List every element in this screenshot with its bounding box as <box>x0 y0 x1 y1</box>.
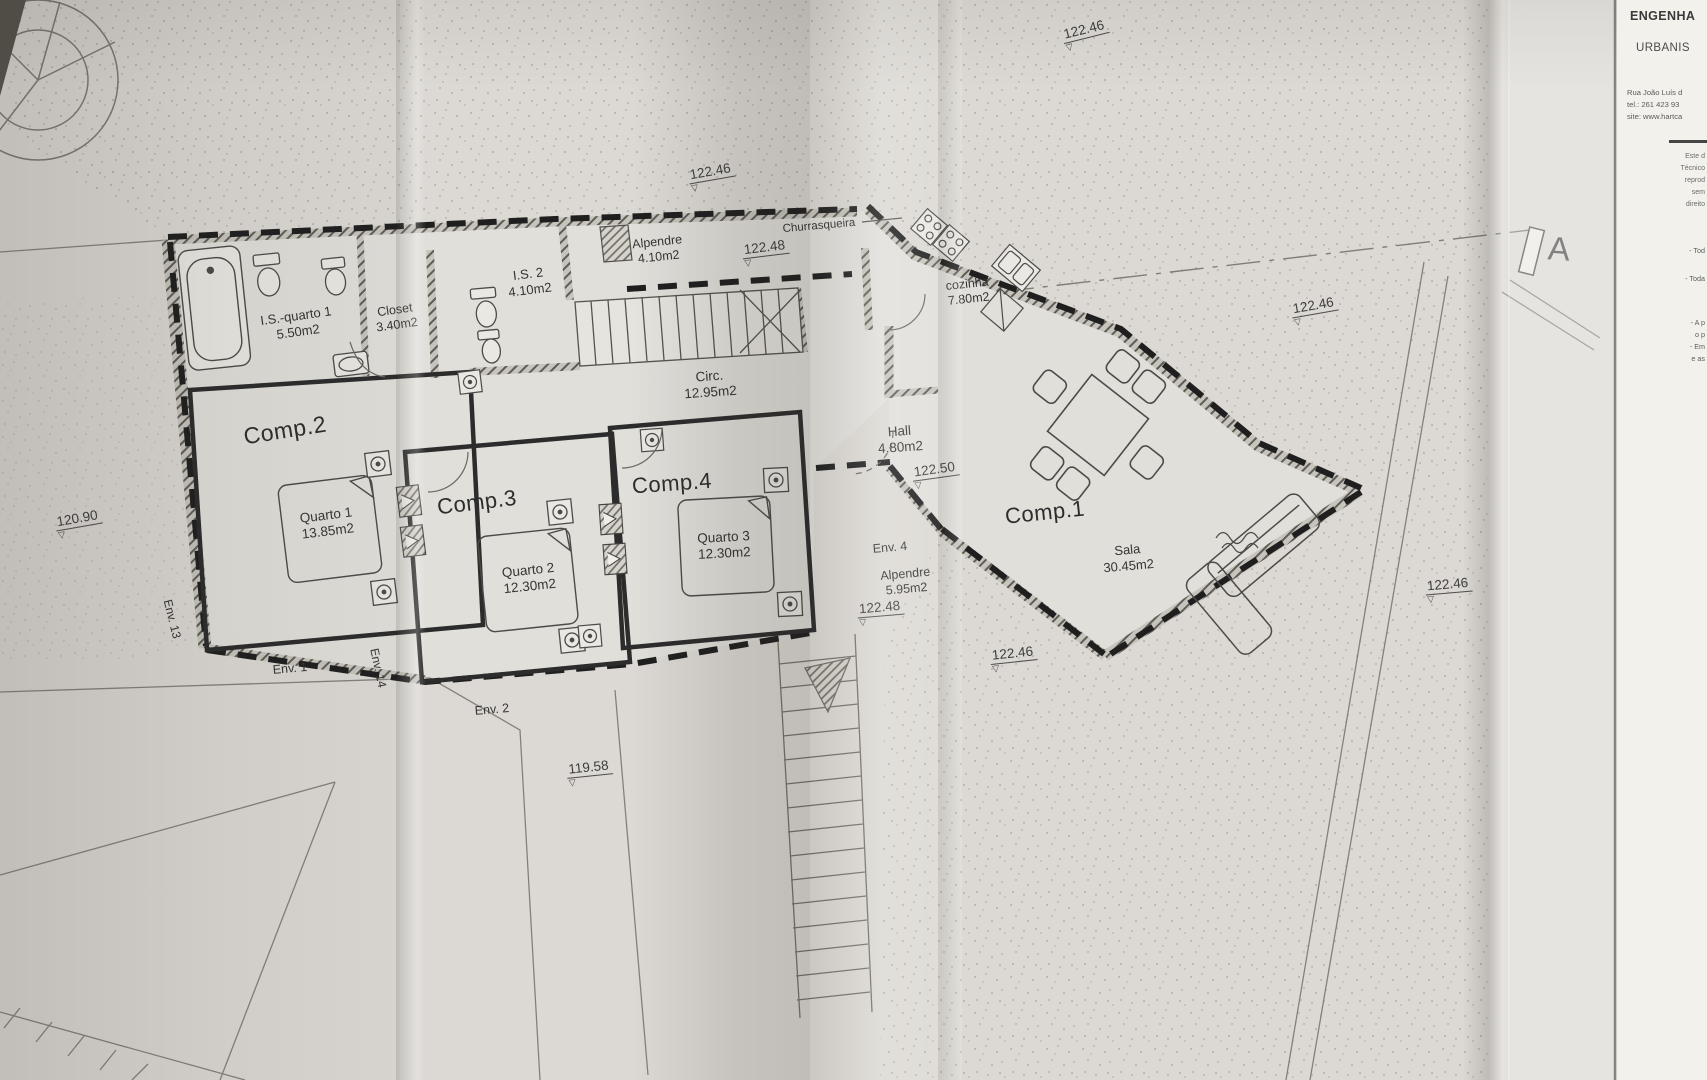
level-marker: 122.46▽ <box>1290 294 1341 327</box>
section-a-label: A <box>1547 229 1572 268</box>
room-label-churrasqueira: Churrasqueira <box>782 216 856 236</box>
level-marker: 122.46▽ <box>989 643 1039 673</box>
room-label-line: Comp.1 <box>1004 495 1086 530</box>
labels-layer: I.S.-quarto 15.50m2Closet3.40m2I.S. 24.1… <box>0 0 1707 1080</box>
firm-name: ENGENHA <box>1630 9 1695 23</box>
level-marker: 122.46▽ <box>1060 16 1112 52</box>
firm-subtitle: URBANIS <box>1636 42 1690 54</box>
room-label-line: 5.95m2 <box>881 580 932 600</box>
firm-site: site: www.hartca <box>1627 112 1682 121</box>
note-line: - Toda <box>1685 274 1705 283</box>
room-label-cozinha: cozinha7.80m2 <box>945 275 991 310</box>
note-line: - Em <box>1690 342 1705 351</box>
level-marker: 122.48▽ <box>856 597 905 626</box>
room-label-sala: Sala30.45m2 <box>1101 540 1154 576</box>
room-label-line: Env. 2 <box>474 701 510 719</box>
disclaimer-line: reprod <box>1617 175 1705 187</box>
room-label-line: Env. 13 <box>160 598 184 640</box>
room-label-line: 30.45m2 <box>1103 556 1155 576</box>
level-marker: 122.46▽ <box>687 160 738 193</box>
room-label-hall: Hall4.80m2 <box>876 422 923 458</box>
room-label-alpendre-sul: Alpendre5.95m2 <box>880 565 933 600</box>
room-label-is-quarto-1: I.S.-quarto 15.50m2 <box>259 303 334 344</box>
floor-plan-photo: I.S.-quarto 15.50m2Closet3.40m2I.S. 24.1… <box>0 0 1707 1080</box>
room-label-quarto-2: Quarto 212.30m2 <box>501 560 557 598</box>
room-label-line: 12.95m2 <box>684 383 738 403</box>
room-label-comp-4: Comp.4 <box>631 468 713 500</box>
room-label-comp-2: Comp.2 <box>242 410 329 451</box>
room-label-is-2: I.S. 24.10m2 <box>506 264 553 301</box>
note-line: - A p <box>1691 318 1705 327</box>
room-label-line: 4.80m2 <box>878 438 924 458</box>
room-label-env-1: Env. 1 <box>272 660 308 678</box>
title-block-rule <box>1669 140 1707 143</box>
room-label-line: Env. 14 <box>367 647 390 689</box>
disclaimer-line: direito <box>1617 199 1705 211</box>
room-label-line: Env. 1 <box>272 660 308 678</box>
room-label-line: 7.80m2 <box>947 290 991 310</box>
disclaimer-line: sem <box>1617 187 1705 199</box>
room-label-env-2: Env. 2 <box>474 701 510 719</box>
note-line: - Tod <box>1689 246 1705 255</box>
room-label-line: Comp.2 <box>242 410 329 451</box>
room-label-closet: Closet3.40m2 <box>373 300 419 336</box>
room-label-env-14: Env. 14 <box>367 647 390 689</box>
level-marker: 120.90▽ <box>54 507 105 540</box>
room-label-env-13: Env. 13 <box>160 598 184 640</box>
level-triangle-icon: ▽ <box>1426 591 1474 603</box>
room-label-line: Comp.3 <box>436 485 519 521</box>
disclaimer-text: Este dTécnicoreprodsemdireito <box>1617 151 1705 211</box>
room-label-line: Comp.4 <box>631 468 713 500</box>
room-label-line: Env. 4 <box>872 539 908 557</box>
note-line: e as <box>1691 354 1705 363</box>
level-marker: 119.58▽ <box>566 757 615 787</box>
room-label-alpendre-norte: Alpendre4.10m2 <box>632 232 685 268</box>
room-label-comp-3: Comp.3 <box>436 485 519 521</box>
level-triangle-icon: ▽ <box>858 614 906 626</box>
level-marker: 122.46▽ <box>1424 574 1473 603</box>
room-label-quarto-3: Quarto 312.30m2 <box>697 528 751 564</box>
firm-address: Rua João Luís d <box>1627 88 1682 97</box>
firm-tel: tel.: 261 423 93 <box>1627 100 1679 109</box>
title-block: ENGENHA URBANIS Rua João Luís d tel.: 26… <box>1617 0 1707 1080</box>
note-line: o p <box>1695 330 1705 339</box>
room-label-env-4: Env. 4 <box>872 539 908 557</box>
room-label-line: 12.30m2 <box>698 545 751 564</box>
room-label-comp-1: Comp.1 <box>1004 495 1086 530</box>
level-marker: 122.48▽ <box>741 237 791 268</box>
disclaimer-line: Técnico <box>1617 163 1705 175</box>
disclaimer-line: Este d <box>1617 151 1705 163</box>
room-label-circ: Circ.12.95m2 <box>683 367 738 404</box>
room-label-quarto-1: Quarto 113.85m2 <box>299 504 355 543</box>
level-marker: 122.50▽ <box>911 458 961 489</box>
room-label-line: Churrasqueira <box>782 216 856 236</box>
